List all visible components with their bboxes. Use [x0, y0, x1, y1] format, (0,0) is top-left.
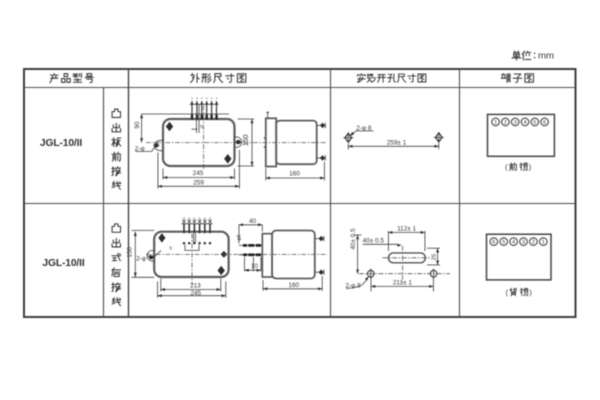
svg-text:90: 90 — [134, 121, 141, 129]
svg-text:3: 3 — [522, 240, 525, 246]
svg-text:112± 1: 112± 1 — [397, 226, 416, 233]
svg-text:25: 25 — [431, 254, 437, 260]
svg-text:40± 0.5: 40± 0.5 — [363, 238, 385, 245]
svg-text:259: 259 — [193, 180, 204, 187]
svg-text:5: 5 — [533, 120, 536, 126]
svg-text:4: 4 — [524, 120, 527, 126]
svg-text:JGL-10/II: JGL-10/II — [40, 138, 82, 149]
svg-text:160: 160 — [289, 171, 300, 178]
svg-text:6: 6 — [543, 120, 546, 126]
svg-text:mm: mm — [538, 51, 554, 62]
svg-text:5: 5 — [502, 240, 505, 246]
svg-text:1: 1 — [542, 240, 545, 246]
svg-text:10: 10 — [251, 263, 259, 270]
svg-text:JGL-10/II: JGL-10/II — [42, 258, 84, 269]
svg-text:1: 1 — [494, 120, 497, 126]
svg-text:150: 150 — [243, 134, 250, 146]
svg-text:5: 5 — [170, 245, 173, 250]
svg-text:2: 2 — [504, 120, 507, 126]
svg-text:245: 245 — [190, 290, 201, 297]
svg-text:150: 150 — [127, 247, 134, 258]
svg-text:5: 5 — [200, 124, 203, 129]
svg-text:40± 0.5: 40± 0.5 — [350, 228, 357, 250]
svg-text:259± 1: 259± 1 — [387, 139, 407, 146]
svg-text:2-φ: 2-φ — [136, 256, 146, 263]
svg-text:4: 4 — [512, 240, 515, 246]
svg-text:40: 40 — [249, 218, 257, 225]
svg-text:2: 2 — [532, 240, 535, 246]
svg-text:213: 213 — [190, 282, 201, 289]
svg-text:211± 1: 211± 1 — [393, 279, 412, 286]
svg-text:6: 6 — [492, 240, 495, 246]
svg-text:3: 3 — [514, 120, 517, 126]
svg-text:245: 245 — [193, 170, 204, 177]
svg-text:160: 160 — [288, 282, 299, 289]
svg-text:φ6: φ6 — [237, 234, 243, 240]
